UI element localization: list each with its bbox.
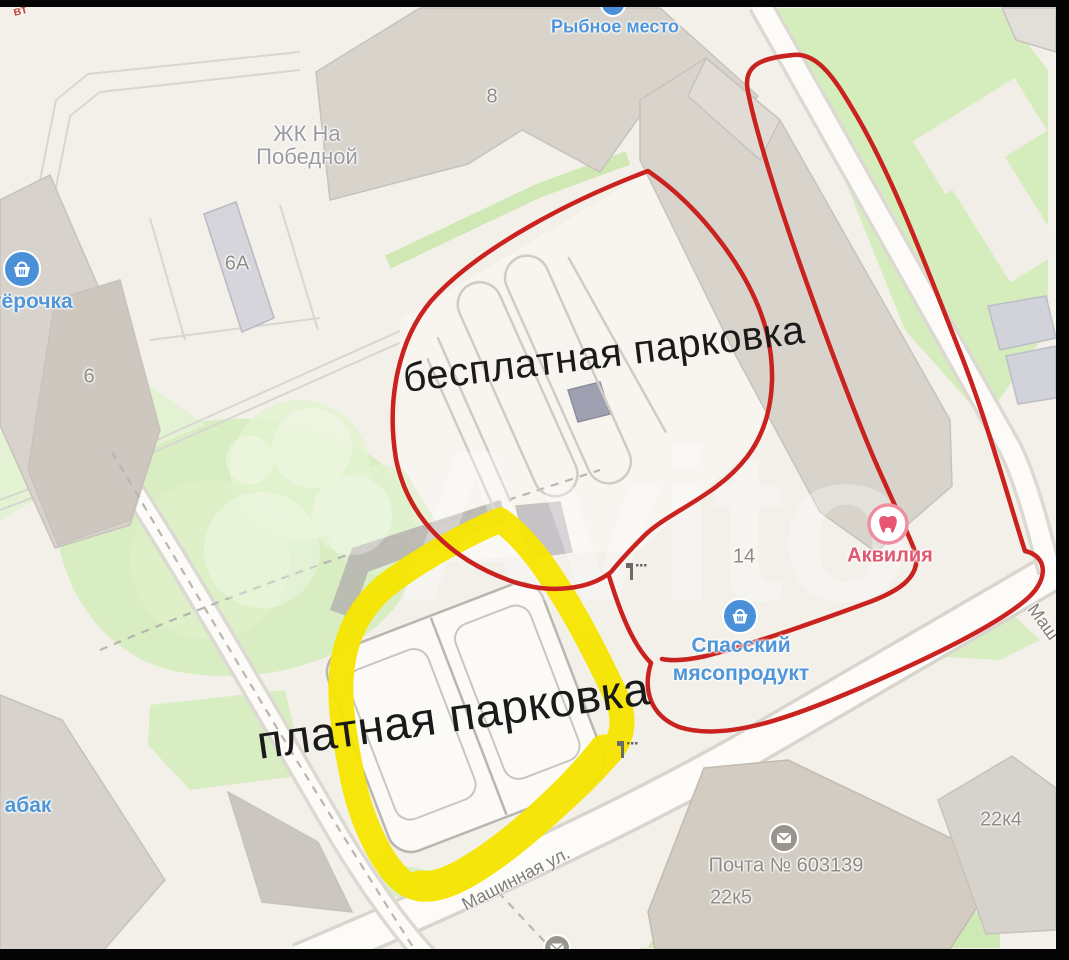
building-label-8: 8	[486, 86, 497, 109]
map-base: Avito	[0, 0, 1069, 960]
poi-label-spassky-line1: Спасский	[673, 632, 809, 660]
building-label-14: 14	[733, 546, 755, 569]
building-label-6: 6	[83, 366, 94, 389]
building-label-6a: 6А	[225, 253, 249, 276]
top-frame-bar	[0, 0, 1069, 7]
grocery-basket-icon	[721, 597, 759, 635]
grocery-basket-icon	[2, 249, 42, 289]
right-frame-bar	[1056, 0, 1069, 960]
residential-complex-line1: ЖК На	[256, 122, 358, 145]
annotated-map-screenshot: Avito	[0, 0, 1069, 960]
poi-label-post-office: Почта № 603139	[709, 855, 864, 878]
building-label-22k5: 22к5	[710, 887, 752, 910]
residential-complex-label: ЖК На Победной	[256, 122, 358, 168]
poi-label-spassky: Спасский мясопродукт	[673, 632, 809, 688]
residential-complex-line2: Победной	[256, 145, 358, 168]
poi-label-spassky-line2: мясопродукт	[673, 660, 809, 688]
building-label-22k4: 22к4	[980, 809, 1022, 832]
streetlight-icon	[616, 740, 638, 760]
streetlight-icon	[625, 562, 647, 582]
envelope-icon	[768, 822, 800, 854]
bottom-frame-bar	[0, 949, 1069, 960]
poi-label-pyaterochka: тёрочка	[0, 290, 73, 314]
poi-label-akvilia: Аквилия	[847, 545, 933, 568]
poi-label-tabak: абак	[5, 794, 52, 818]
tooth-icon	[867, 503, 909, 545]
poi-label-rybnoe-mesto: Рыбное место	[551, 17, 679, 38]
